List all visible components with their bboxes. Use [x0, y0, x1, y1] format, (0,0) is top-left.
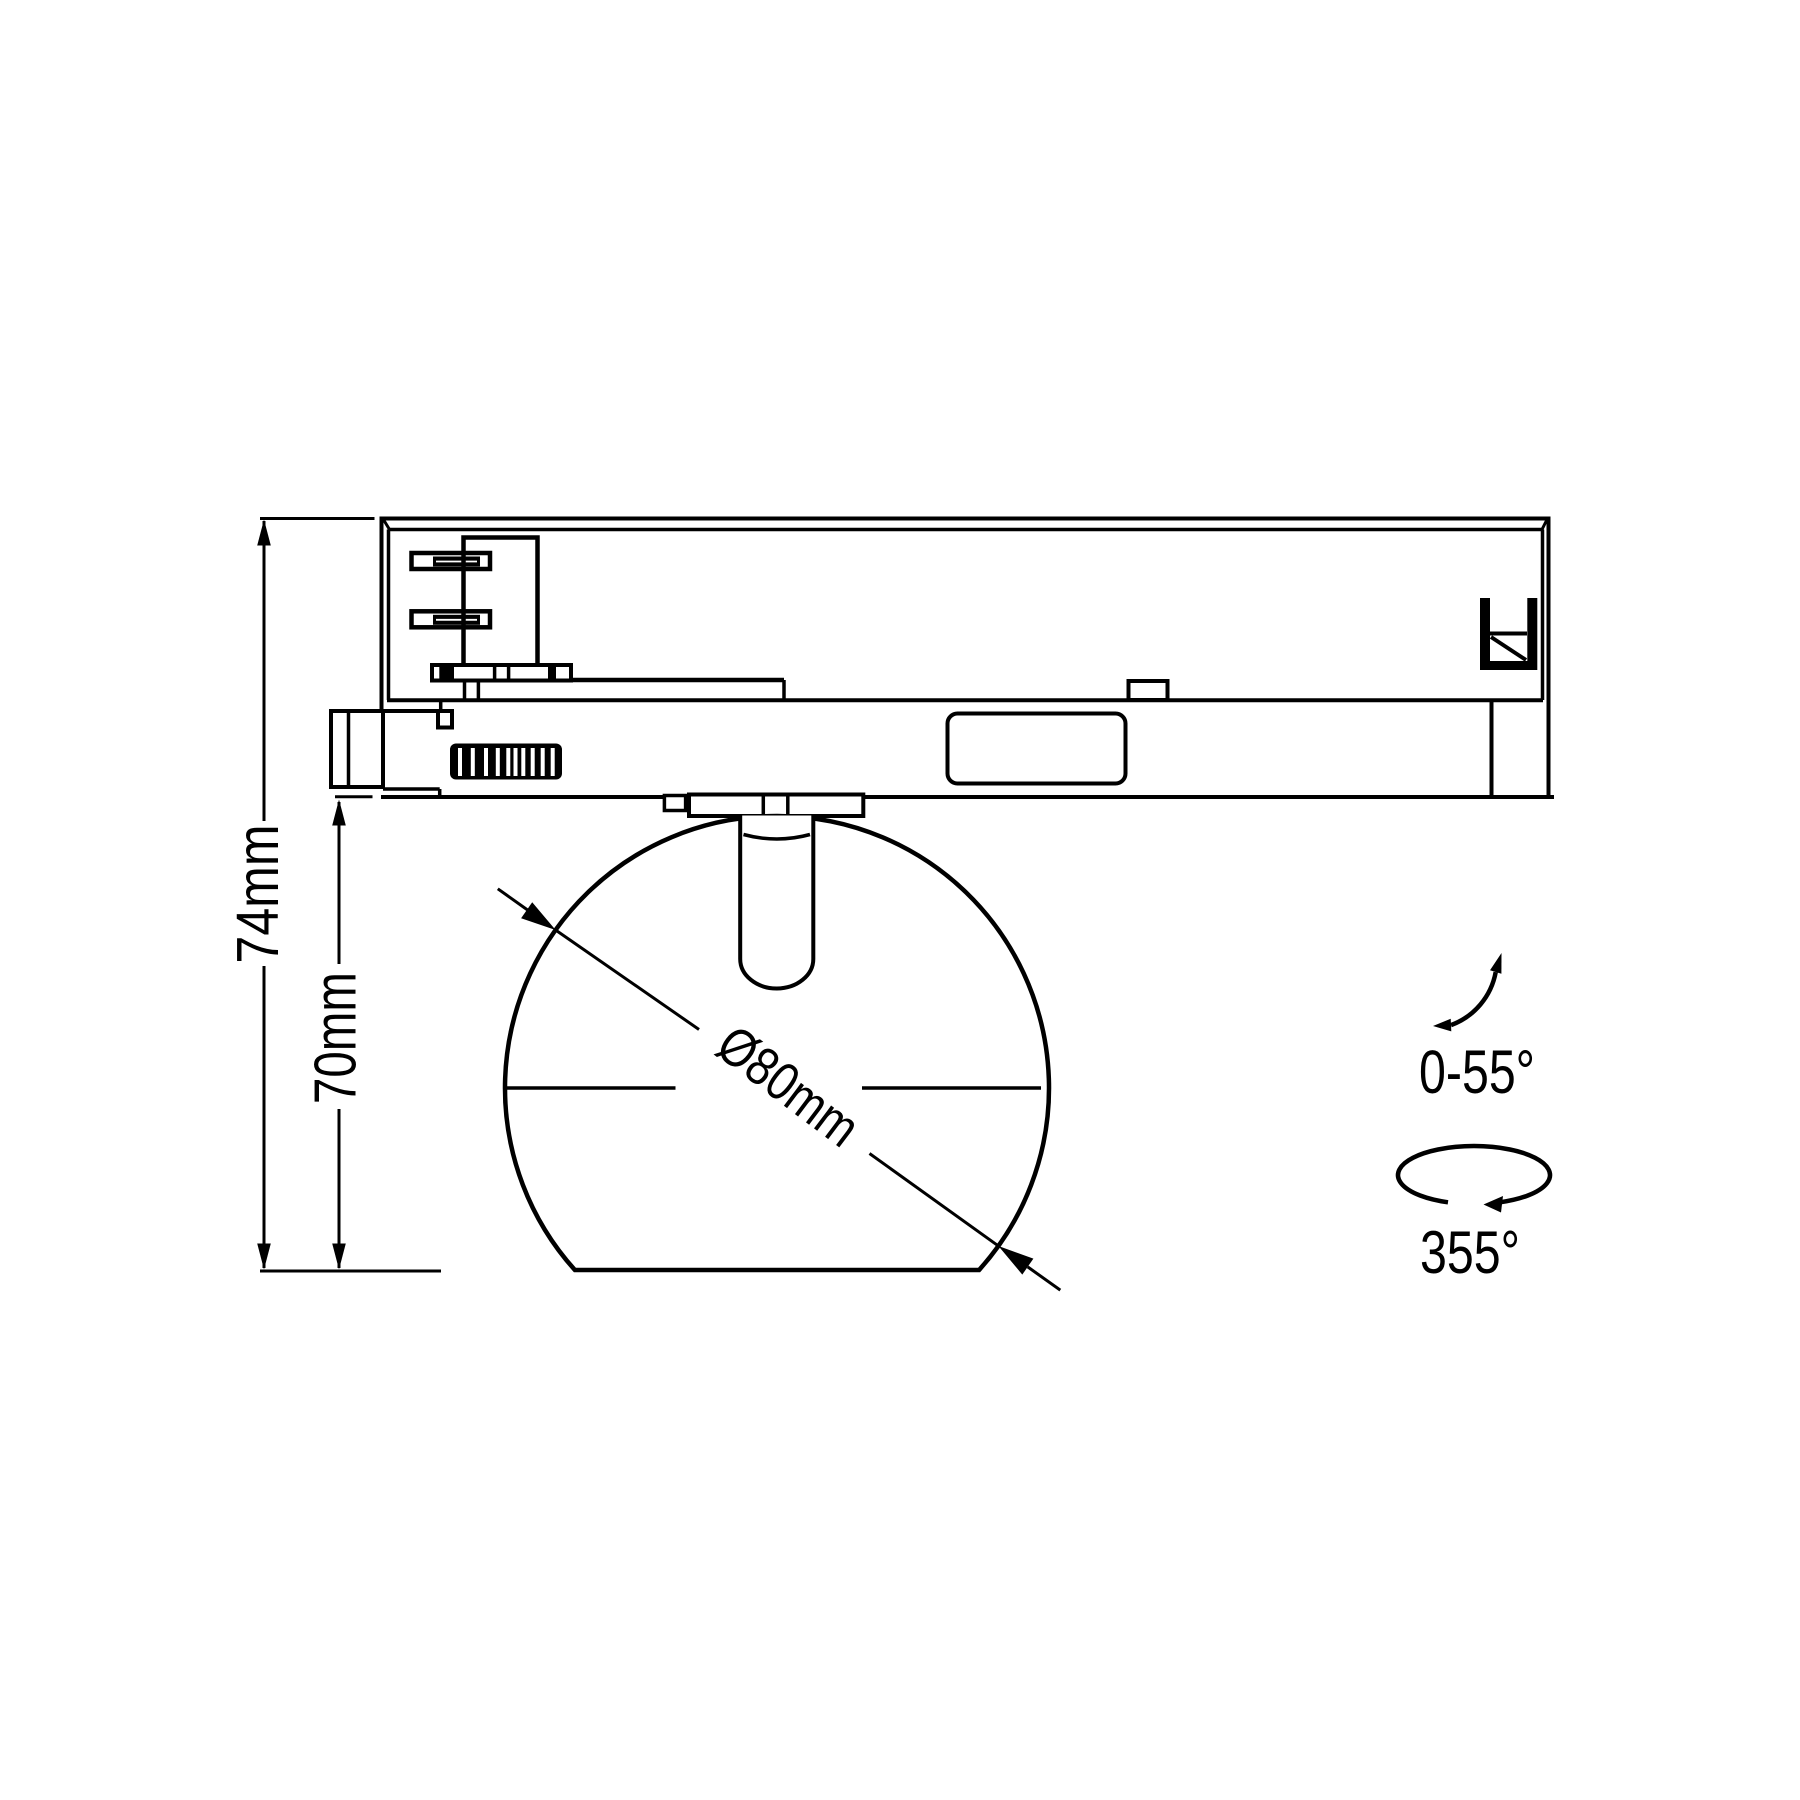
svg-text:355°: 355°: [1420, 1219, 1520, 1286]
svg-text:0-55°: 0-55°: [1419, 1038, 1535, 1107]
svg-text:74mm: 74mm: [224, 825, 291, 964]
svg-text:70mm: 70mm: [302, 972, 369, 1104]
